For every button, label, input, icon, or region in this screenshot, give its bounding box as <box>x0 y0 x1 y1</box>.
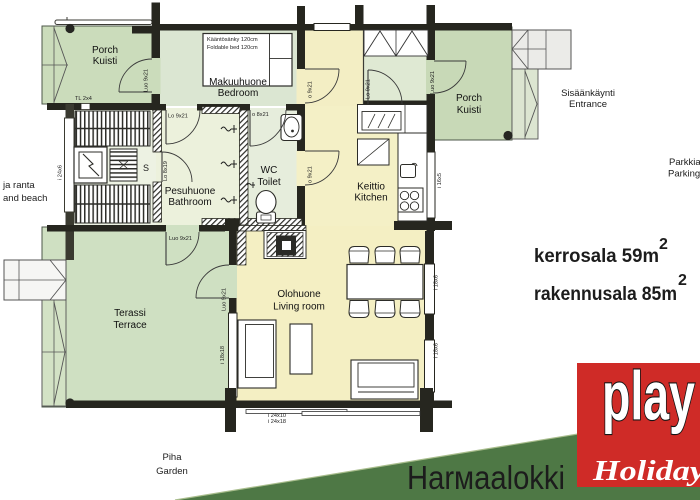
svg-text:and beach: and beach <box>3 193 47 204</box>
svg-text:S: S <box>143 163 149 173</box>
svg-text:Luo 9x21: Luo 9x21 <box>222 288 228 311</box>
svg-text:play: play <box>602 358 695 435</box>
svg-text:Piha: Piha <box>162 452 182 463</box>
svg-text:kerrosala 59m: kerrosala 59m <box>534 246 659 267</box>
svg-text:Parkkial: Parkkial <box>669 157 700 168</box>
svg-text:o 9x21: o 9x21 <box>308 166 314 183</box>
svg-text:Garden: Garden <box>156 466 188 477</box>
svg-text:2: 2 <box>678 272 687 289</box>
svg-text:i 18x6: i 18x6 <box>434 343 440 358</box>
svg-text:ja ranta: ja ranta <box>2 180 35 191</box>
svg-text:Parking: Parking <box>668 169 700 180</box>
svg-text:Toilet: Toilet <box>257 177 281 188</box>
svg-text:o 8x21: o 8x21 <box>252 112 269 118</box>
svg-text:Luo 9x21: Luo 9x21 <box>169 236 192 242</box>
svg-text:Porch: Porch <box>92 45 118 56</box>
svg-text:Sisäänkäynti: Sisäänkäynti <box>561 88 615 99</box>
svg-text:Luo 9x21: Luo 9x21 <box>430 71 436 94</box>
svg-text:2: 2 <box>659 236 668 253</box>
svg-text:Harмaalokki: Harмaalokki <box>407 459 565 496</box>
svg-text:Kääntösänky 120cm: Kääntösänky 120cm <box>207 37 258 43</box>
svg-text:Makuuhuone: Makuuhuone <box>209 77 267 88</box>
svg-text:Luo 9x21: Luo 9x21 <box>144 69 150 92</box>
svg-text:Lo 9x21: Lo 9x21 <box>168 114 188 120</box>
svg-text:Foldable bed 120cm: Foldable bed 120cm <box>207 45 258 51</box>
svg-text:Lo 9x21: Lo 9x21 <box>366 79 372 99</box>
svg-text:Entrance: Entrance <box>569 99 607 110</box>
svg-text:Olohuone: Olohuone <box>277 289 321 300</box>
svg-text:rakennusala 85m: rakennusala 85m <box>534 284 677 305</box>
svg-text:i 24x18: i 24x18 <box>268 419 286 425</box>
svg-text:i 18x6: i 18x6 <box>434 275 440 290</box>
svg-text:WC: WC <box>261 165 278 176</box>
svg-text:Kuisti: Kuisti <box>93 56 117 67</box>
svg-text:Keittio: Keittio <box>357 182 385 193</box>
svg-text:TL 2x4: TL 2x4 <box>75 96 92 102</box>
svg-text:Holiday: Holiday <box>592 455 700 487</box>
svg-text:Bedroom: Bedroom <box>218 88 259 99</box>
svg-text:Porch: Porch <box>456 93 482 104</box>
svg-text:o 9x21: o 9x21 <box>308 81 314 98</box>
svg-text:Kuisti: Kuisti <box>457 105 481 116</box>
svg-text:i 24x6: i 24x6 <box>58 165 64 180</box>
svg-text:Lo 8x19: Lo 8x19 <box>163 161 169 181</box>
svg-text:i 16x5: i 16x5 <box>437 173 443 188</box>
svg-text:Living room: Living room <box>273 302 325 313</box>
svg-text:i 18x18: i 18x18 <box>220 346 226 364</box>
svg-text:Terrace: Terrace <box>113 320 147 331</box>
svg-text:Kitchen: Kitchen <box>354 193 387 204</box>
svg-text:Pesuhuone: Pesuhuone <box>165 186 216 197</box>
svg-text:Terassi: Terassi <box>114 308 146 319</box>
svg-text:Bathroom: Bathroom <box>168 197 211 208</box>
